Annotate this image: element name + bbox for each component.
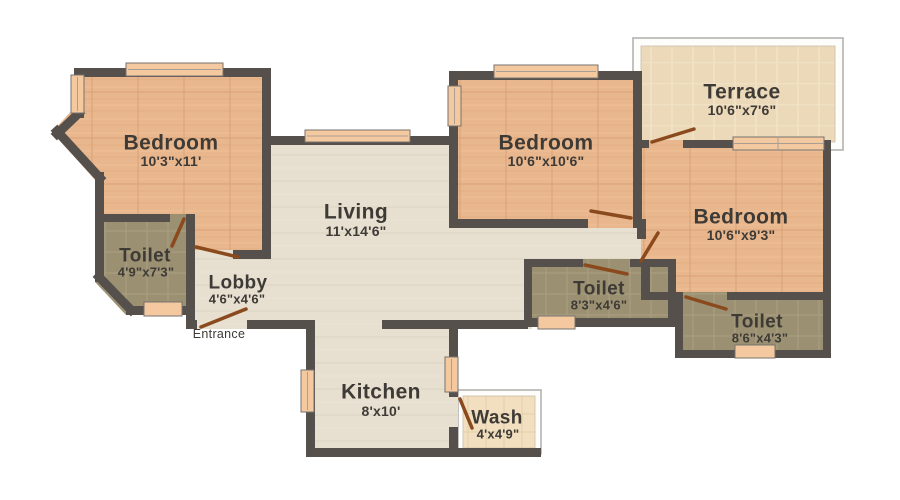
window-toilet-2 bbox=[538, 316, 575, 329]
room-label-bedroom-1: Bedroom bbox=[124, 133, 219, 154]
room-dims-terrace: 10'6"x7'6" bbox=[708, 103, 777, 117]
room-label-toilet-3: Toilet bbox=[731, 313, 783, 332]
room-label-lobby: Lobby bbox=[209, 274, 268, 293]
entrance-label: Entrance bbox=[193, 328, 245, 341]
room-label-terrace: Terrace bbox=[703, 82, 780, 103]
room-dims-toilet-3: 8'6"x4'3" bbox=[732, 332, 788, 345]
window-toilet-1 bbox=[144, 302, 182, 316]
room-label-toilet-2: Toilet bbox=[573, 280, 625, 299]
room-label-bedroom-2: Bedroom bbox=[499, 133, 594, 154]
passage-floor bbox=[449, 263, 532, 329]
room-dims-lobby: 4'6"x4'6" bbox=[209, 293, 265, 306]
room-dims-bedroom-1: 10'3"x11' bbox=[140, 154, 201, 168]
room-dims-wash: 4'x4'9" bbox=[477, 428, 520, 441]
room-dims-living: 11'x14'6" bbox=[325, 224, 386, 238]
floor-plan: Bedroom 10'3"x11' Toilet 4'9"x7'3" Lobby… bbox=[0, 0, 900, 500]
room-label-kitchen: Kitchen bbox=[341, 382, 421, 403]
room-label-living: Living bbox=[324, 202, 388, 223]
room-label-bedroom-3: Bedroom bbox=[694, 207, 789, 228]
room-dims-kitchen: 8'x10' bbox=[361, 404, 400, 418]
room-dims-bedroom-2: 10'6"x10'6" bbox=[508, 154, 585, 168]
window-toilet-3 bbox=[735, 345, 775, 358]
room-dims-toilet-2: 8'3"x4'6" bbox=[571, 299, 627, 312]
room-dims-toilet-1: 4'9"x7'3" bbox=[118, 266, 174, 279]
room-label-toilet-1: Toilet bbox=[119, 247, 171, 266]
room-label-wash: Wash bbox=[471, 409, 523, 428]
room-dims-bedroom-3: 10'6"x9'3" bbox=[707, 228, 776, 242]
